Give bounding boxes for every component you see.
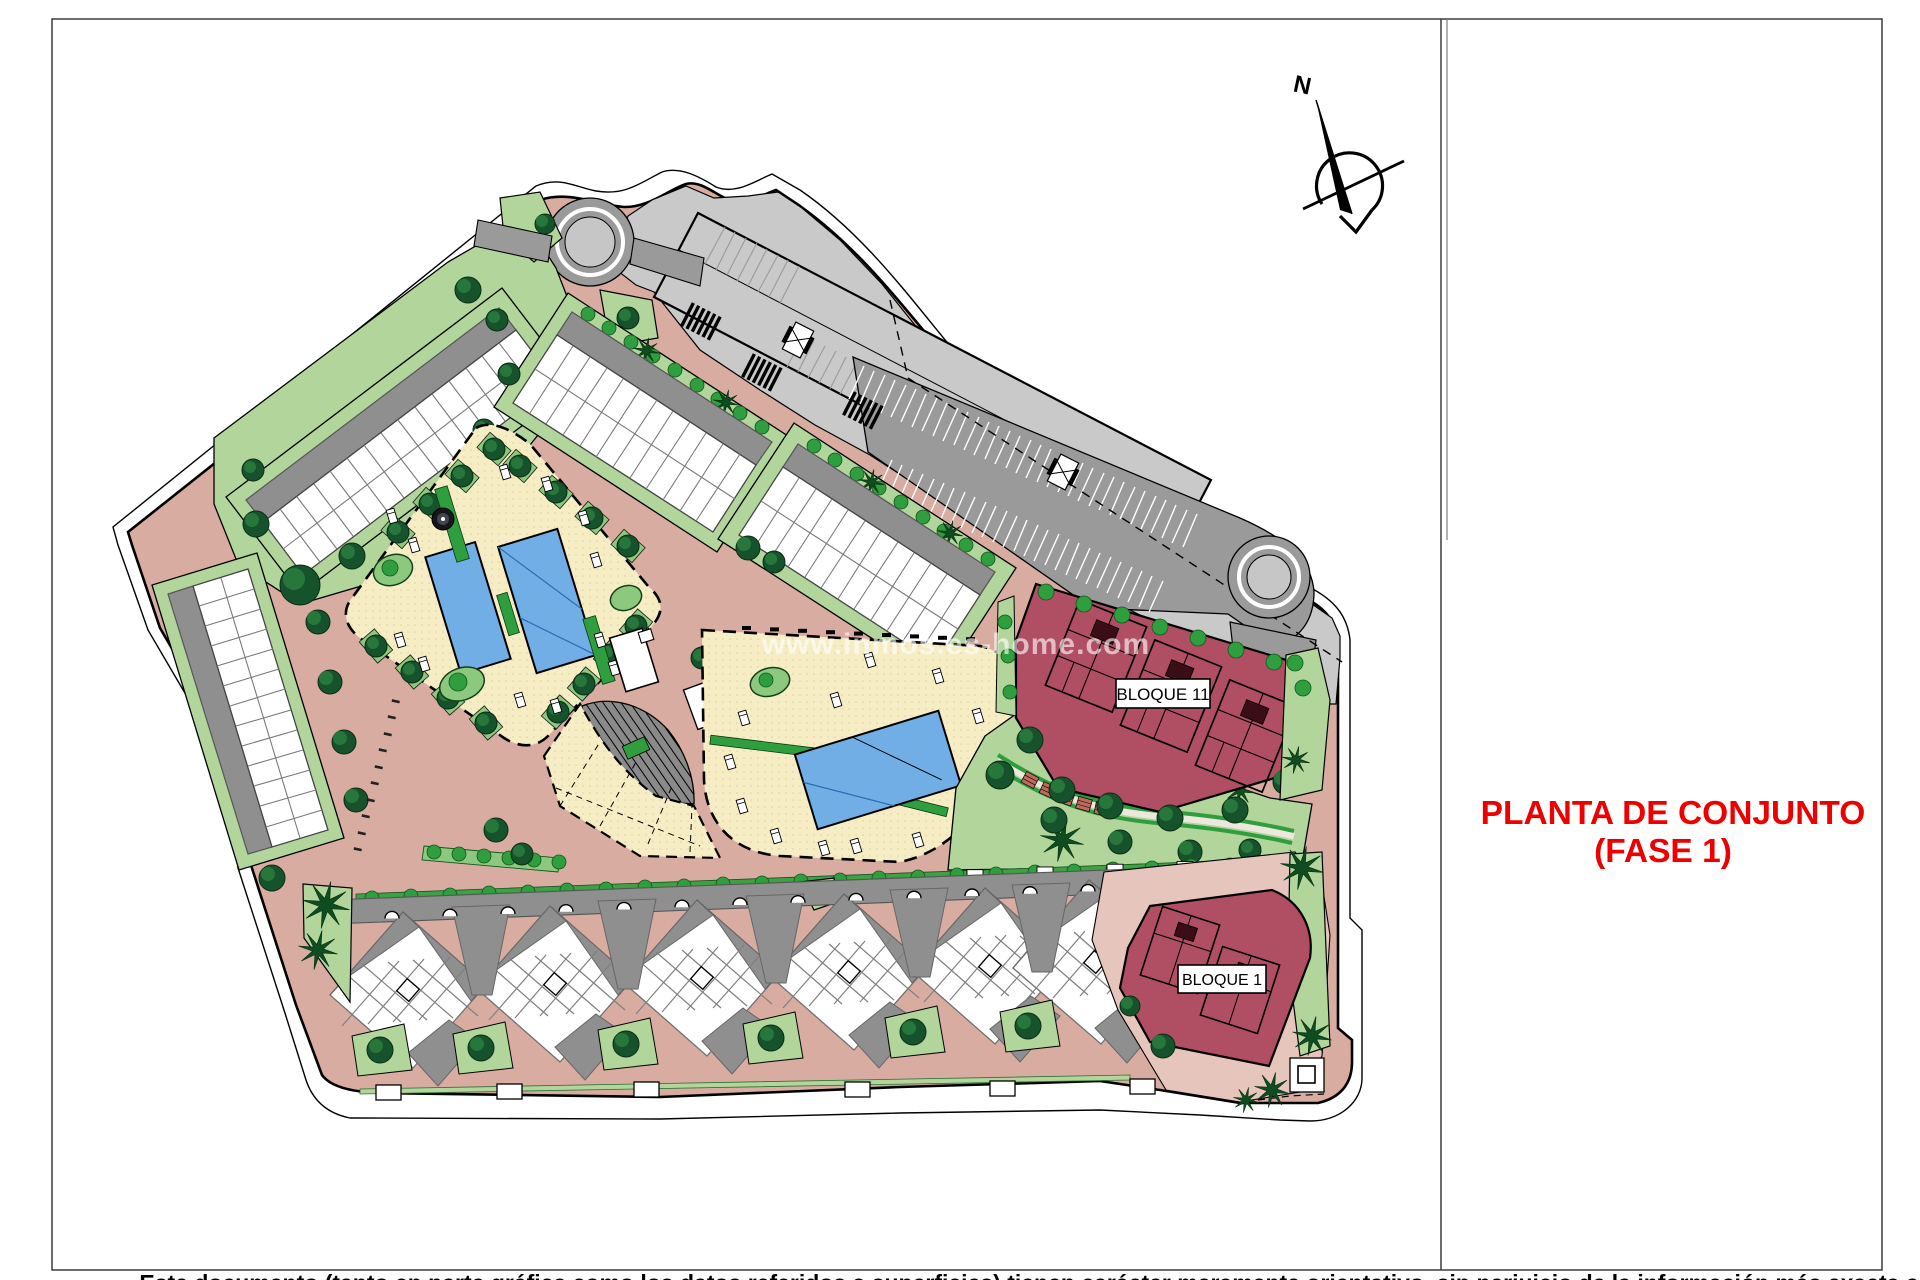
svg-text:(FASE 1): (FASE 1) xyxy=(1594,833,1732,870)
svg-text:— Este documento (tanto en pa: — Este documento (tanto en parte gráfica… xyxy=(110,1270,1920,1280)
svg-text:BLOQUE 11: BLOQUE 11 xyxy=(1116,685,1209,704)
svg-text:www.inmos.es-home.com: www.inmos.es-home.com xyxy=(761,628,1150,661)
svg-text:BLOQUE 1: BLOQUE 1 xyxy=(1182,972,1262,989)
svg-text:PLANTA DE CONJUNTO: PLANTA DE CONJUNTO xyxy=(1481,795,1866,832)
